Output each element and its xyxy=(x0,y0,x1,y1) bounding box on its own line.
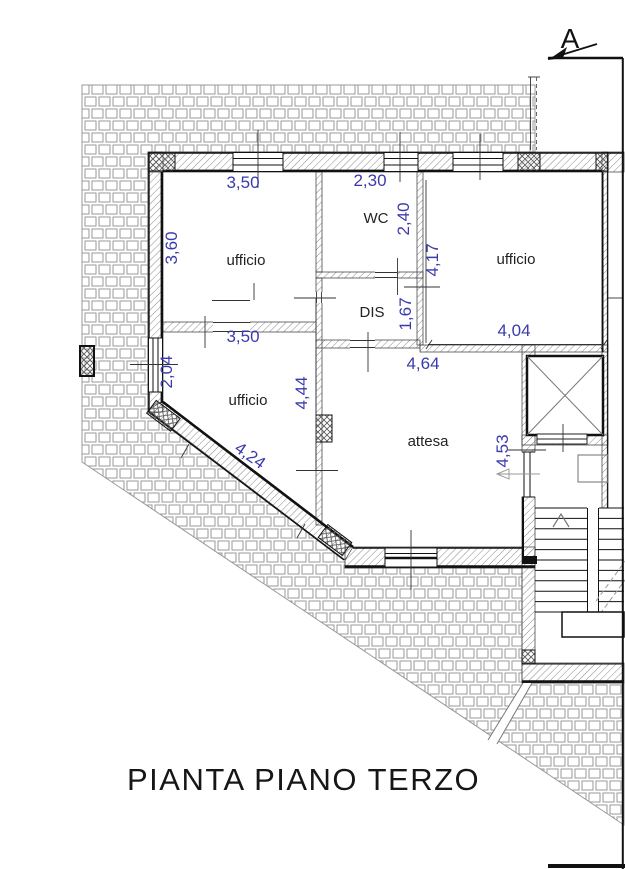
stair-steps xyxy=(535,508,624,612)
label-office-top-left: ufficio xyxy=(227,252,266,269)
corner-block-top-mid xyxy=(518,153,540,171)
stair-wall-block xyxy=(522,650,535,664)
wc-south-partition xyxy=(316,272,423,278)
attesa-north-partition xyxy=(420,345,608,352)
dim-office-top-left-width: 3,50 xyxy=(226,173,259,192)
stair-landing xyxy=(562,612,624,637)
wall-niche xyxy=(316,415,332,442)
stair-direction-arrow xyxy=(553,514,569,527)
dim-wc-depth: 2,40 xyxy=(394,202,413,235)
dim-office-bottom-left-width: 3,50 xyxy=(226,327,259,346)
label-office-bottom-left: ufficio xyxy=(229,392,268,409)
corner-block-top-left xyxy=(149,153,175,171)
dim-office-top-right-depth: 4,17 xyxy=(423,243,442,276)
partition-ufficio-wc xyxy=(316,172,322,272)
label-disimpegno: DIS xyxy=(359,304,384,321)
stair-break-line xyxy=(600,576,625,614)
floor-plan-drawing: ufficio WC ufficio DIS ufficio attesa 3,… xyxy=(0,0,625,869)
page-title: PIANTA PIANO TERZO xyxy=(127,762,480,797)
staircase xyxy=(535,508,625,637)
door-wc xyxy=(375,258,398,295)
lobby xyxy=(497,452,608,497)
dim-office-top-right-width: 4,04 xyxy=(497,321,530,340)
dim-waiting-room-depth: 4,53 xyxy=(493,434,512,467)
label-office-top-right: ufficio xyxy=(497,251,536,268)
dim-office-top-left-depth: 3,60 xyxy=(162,231,181,264)
bottom-exterior-wall xyxy=(345,547,535,568)
label-waiting-room: attesa xyxy=(408,433,450,450)
dim-office-bottom-left-side: 2,04 xyxy=(157,355,176,388)
corner-block-top-right xyxy=(596,153,608,171)
exterior-pillar xyxy=(80,346,94,376)
partition-ufficio-attesa xyxy=(316,278,322,525)
dim-waiting-room-width: 4,64 xyxy=(406,354,439,373)
dim-wc-width: 2,30 xyxy=(353,171,386,190)
window-wc xyxy=(384,153,418,172)
door-dis-attesa xyxy=(350,332,375,372)
dim-disimpegno-depth: 1,67 xyxy=(396,297,415,330)
stair-south-wall xyxy=(522,663,624,683)
window-top-right xyxy=(453,153,503,172)
dim-office-bottom-left-depth: 4,44 xyxy=(292,376,311,409)
wall-corner-block xyxy=(522,556,537,564)
door-dis-ufficio xyxy=(316,292,323,303)
floor-plan-sheet: ufficio WC ufficio DIS ufficio attesa 3,… xyxy=(0,0,625,869)
section-marker: A xyxy=(548,23,623,60)
label-wc: WC xyxy=(364,210,389,227)
